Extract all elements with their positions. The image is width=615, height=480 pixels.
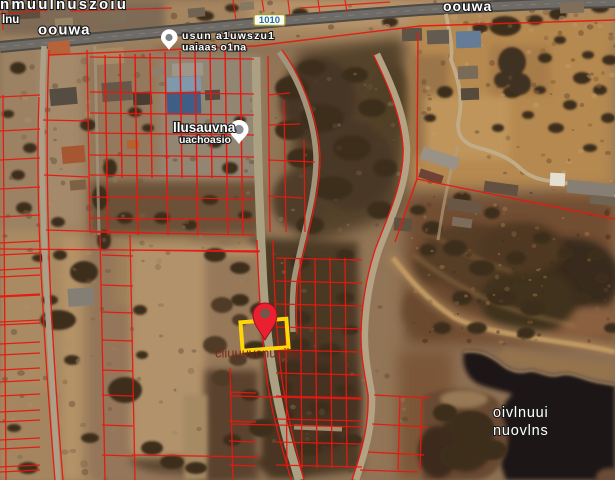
svg-text:oouwa: oouwa — [38, 22, 91, 39]
svg-text:usun a1uwszu1: usun a1uwszu1 — [182, 30, 275, 42]
svg-text:oouwa: oouwa — [443, 0, 492, 14]
svg-text:llusauvna: llusauvna — [173, 120, 236, 135]
svg-text:lnu: lnu — [2, 14, 19, 26]
svg-text:uaiaas o1na: uaiaas o1na — [182, 42, 247, 54]
svg-text:ciiuuuvcnuniiau: ciiuuuvcnuniiau — [215, 346, 304, 361]
svg-text:nuovlns: nuovlns — [493, 423, 549, 439]
svg-text:1010: 1010 — [259, 15, 280, 26]
svg-text:nmuulnuszoiu: nmuulnuszoiu — [0, 0, 128, 13]
svg-text:uachoasio: uachoasio — [179, 134, 231, 146]
svg-text:oivlnuui: oivlnuui — [493, 405, 549, 421]
